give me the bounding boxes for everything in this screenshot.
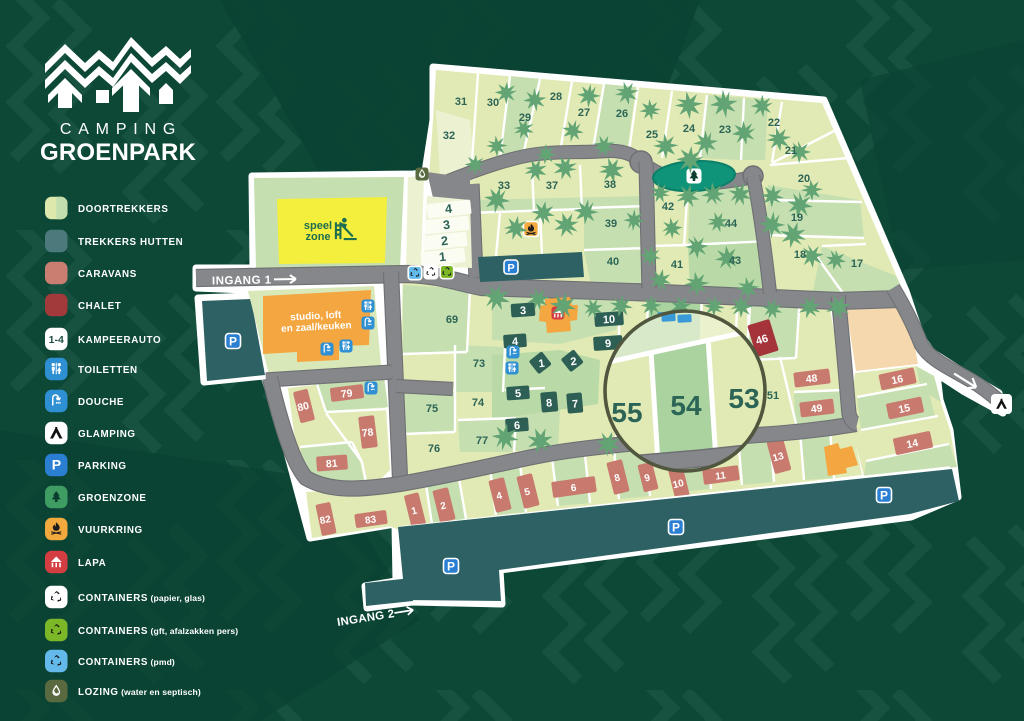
svg-text:48: 48 <box>805 372 818 385</box>
svg-text:32: 32 <box>443 130 455 142</box>
svg-text:GLAMPING: GLAMPING <box>78 429 136 440</box>
svg-text:9: 9 <box>605 338 612 350</box>
svg-text:38: 38 <box>604 179 616 191</box>
svg-text:37: 37 <box>546 180 558 192</box>
svg-text:TREKKERS HUTTEN: TREKKERS HUTTEN <box>78 237 183 248</box>
svg-text:1-4: 1-4 <box>49 334 64 346</box>
svg-text:76: 76 <box>428 443 440 455</box>
svg-text:78: 78 <box>361 426 374 439</box>
svg-text:DOUCHE: DOUCHE <box>78 397 124 408</box>
svg-text:77: 77 <box>476 435 488 447</box>
svg-text:75: 75 <box>426 403 438 415</box>
svg-text:40: 40 <box>607 256 619 268</box>
svg-text:5: 5 <box>515 388 522 400</box>
svg-text:54: 54 <box>670 390 702 421</box>
svg-text:17: 17 <box>851 258 863 270</box>
svg-text:10: 10 <box>603 314 616 327</box>
svg-text:31: 31 <box>455 96 467 108</box>
svg-text:CONTAINERS (pmd): CONTAINERS (pmd) <box>78 657 175 668</box>
svg-text:CAMPING: CAMPING <box>60 121 182 138</box>
svg-text:P: P <box>52 457 61 473</box>
svg-text:KAMPEERAUTO: KAMPEERAUTO <box>78 335 161 346</box>
svg-text:LAPA: LAPA <box>78 558 106 569</box>
svg-text:55: 55 <box>611 397 642 428</box>
svg-text:21: 21 <box>785 145 797 157</box>
svg-text:20: 20 <box>798 173 810 185</box>
svg-text:33: 33 <box>498 180 510 192</box>
svg-text:LOZING (water en septisch): LOZING (water en septisch) <box>78 687 201 698</box>
svg-text:44: 44 <box>725 218 738 230</box>
svg-text:TOILETTEN: TOILETTEN <box>78 365 138 376</box>
svg-text:29: 29 <box>519 112 531 124</box>
svg-text:DOORTREKKERS: DOORTREKKERS <box>78 204 168 215</box>
svg-text:CONTAINERS (papier, glas): CONTAINERS (papier, glas) <box>78 593 205 604</box>
svg-text:INGANG 1: INGANG 1 <box>212 274 272 287</box>
svg-text:30: 30 <box>487 97 499 109</box>
svg-text:CHALET: CHALET <box>78 301 121 312</box>
svg-text:41: 41 <box>671 259 683 271</box>
svg-text:49: 49 <box>810 402 823 415</box>
svg-text:43: 43 <box>729 255 741 267</box>
svg-text:81: 81 <box>326 458 339 471</box>
svg-text:P: P <box>507 262 514 274</box>
svg-text:GROENZONE: GROENZONE <box>78 493 147 504</box>
svg-text:GROENPARK: GROENPARK <box>40 139 196 166</box>
svg-text:18: 18 <box>794 249 806 261</box>
svg-text:P: P <box>672 521 680 535</box>
svg-text:PARKING: PARKING <box>78 461 127 472</box>
svg-text:28: 28 <box>550 91 562 103</box>
svg-text:42: 42 <box>662 201 674 213</box>
svg-text:7: 7 <box>572 398 579 410</box>
svg-text:27: 27 <box>578 107 590 119</box>
svg-text:22: 22 <box>768 117 780 129</box>
svg-text:79: 79 <box>340 387 353 400</box>
svg-text:83: 83 <box>364 514 377 527</box>
svg-text:25: 25 <box>646 129 658 141</box>
svg-text:24: 24 <box>683 123 696 135</box>
svg-text:69: 69 <box>446 314 458 326</box>
svg-text:74: 74 <box>472 397 485 409</box>
svg-text:3: 3 <box>520 305 527 317</box>
svg-text:26: 26 <box>616 108 628 120</box>
svg-text:zone: zone <box>305 231 330 243</box>
svg-text:51: 51 <box>767 390 779 402</box>
svg-text:8: 8 <box>546 397 553 409</box>
svg-text:23: 23 <box>719 124 731 136</box>
svg-text:73: 73 <box>473 358 485 370</box>
svg-text:CARAVANS: CARAVANS <box>78 269 137 280</box>
svg-text:53: 53 <box>728 383 759 414</box>
svg-text:19: 19 <box>791 212 803 224</box>
svg-text:P: P <box>447 560 455 574</box>
svg-text:11: 11 <box>715 470 727 482</box>
svg-text:P: P <box>229 335 237 349</box>
svg-text:39: 39 <box>605 218 617 230</box>
svg-text:CONTAINERS (gft, afalzakken pe: CONTAINERS (gft, afalzakken pers) <box>78 626 238 637</box>
svg-text:VUURKRING: VUURKRING <box>78 525 143 536</box>
svg-text:P: P <box>880 489 888 503</box>
